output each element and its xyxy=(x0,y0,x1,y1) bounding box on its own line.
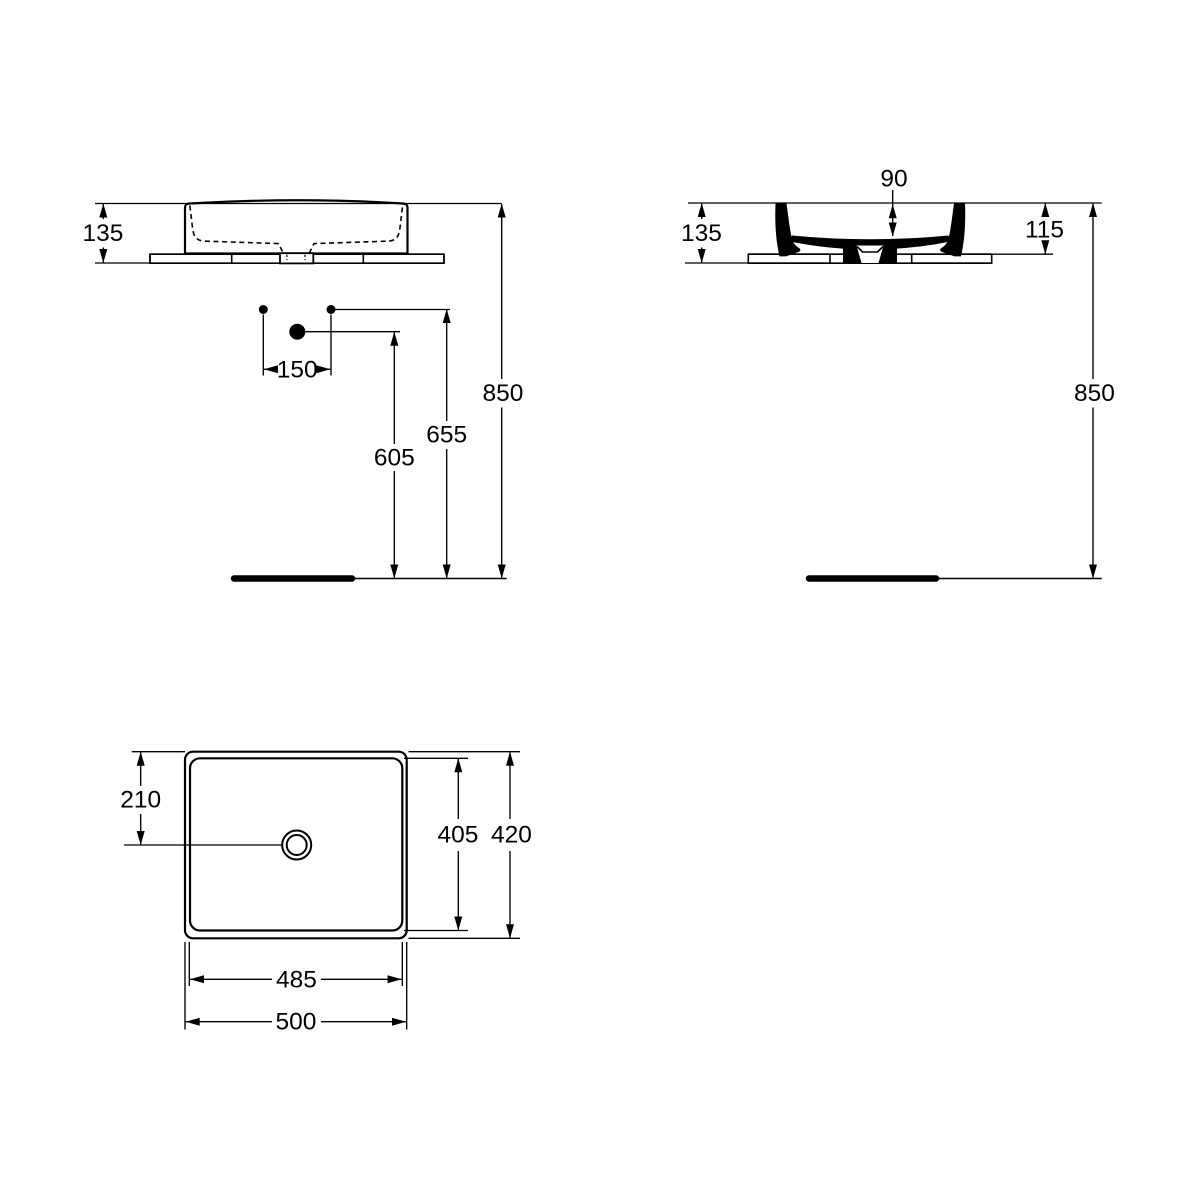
dim-label-side-height: 135 xyxy=(681,220,722,247)
waste-outlet-front xyxy=(280,253,313,263)
dim-label-outlet-height: 605 xyxy=(374,444,415,471)
dim-label-bowl-depth: 90 xyxy=(880,166,907,193)
dim-label-inner-depth: 405 xyxy=(438,822,479,849)
tap-hole-left-dot xyxy=(259,305,268,314)
technical-drawing-canvas: 135 150 xyxy=(0,0,1200,1200)
dim-label-front-rim-height: 850 xyxy=(483,380,524,407)
dim-label-drain-offset: 210 xyxy=(120,787,161,814)
dim-label-overall-width: 500 xyxy=(276,1009,317,1036)
dim-label-tap-hole-spacing: 150 xyxy=(277,356,318,383)
dim-label-side-rim-height: 850 xyxy=(1074,380,1115,407)
dim-label-overall-depth: 420 xyxy=(491,822,532,849)
background xyxy=(0,0,1200,1200)
dim-label-rim-above-counter: 115 xyxy=(1025,217,1064,244)
dim-label-front-height: 135 xyxy=(83,220,124,247)
dim-label-tap-hole-height: 655 xyxy=(426,422,467,449)
washbasin-dimension-drawing: 135 150 xyxy=(0,0,1200,1200)
dim-label-inner-width: 485 xyxy=(276,966,317,993)
